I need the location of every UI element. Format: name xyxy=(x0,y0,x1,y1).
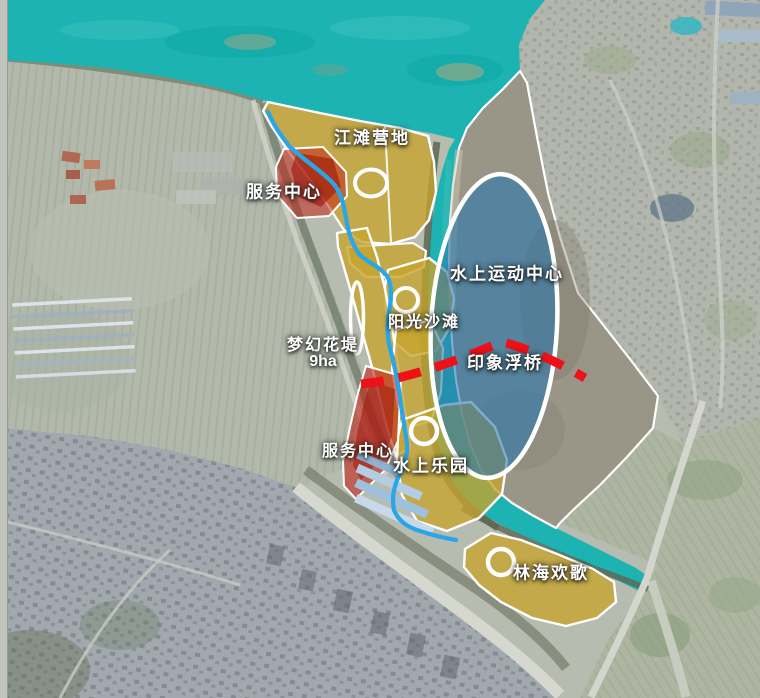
industrial-pool xyxy=(670,17,702,35)
image-edge-strip xyxy=(0,0,8,698)
river-islet xyxy=(312,64,348,76)
river-islet xyxy=(224,34,276,50)
master-plan-map: 江滩营地 服务中心 水上运动中心 阳光沙滩 梦幻花堤 9ha 印象浮桥 服务中心… xyxy=(0,0,760,698)
river-islet xyxy=(436,63,484,81)
